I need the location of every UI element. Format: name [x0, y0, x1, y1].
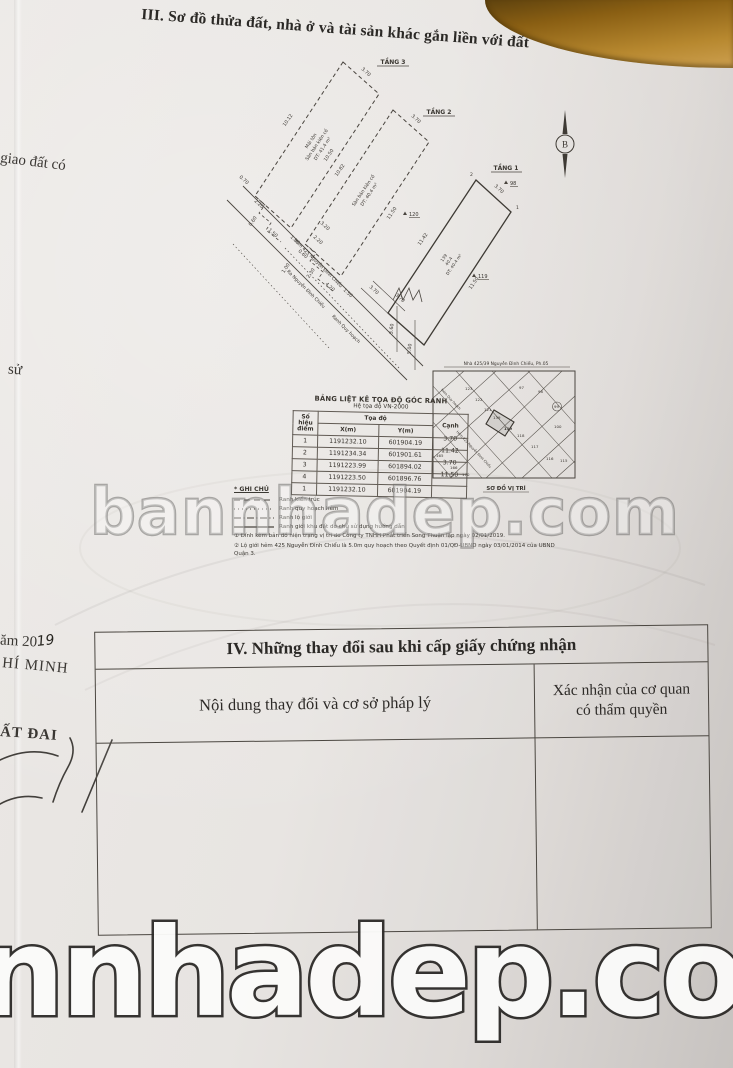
floor1-corner-2: 2	[470, 172, 473, 178]
floor2-dimensions: 3.70 10.82 11.50 0.60 2.20 2.30 3.20 4.2…	[281, 113, 422, 299]
street2-label: Ra Nguyễn Đình Chiểu	[285, 268, 327, 310]
svg-text:116: 116	[546, 456, 554, 461]
parcel-ref-98: 98	[504, 181, 518, 188]
floor2-interior-text: Sàn bán kiên cố DT: 40.4 m²	[350, 173, 379, 207]
svg-text:123: 123	[465, 386, 473, 391]
legend-line-dotted	[234, 506, 274, 512]
svg-text:170: 170	[462, 472, 470, 477]
svg-text:120: 120	[409, 212, 419, 218]
svg-text:2.30: 2.30	[306, 267, 317, 279]
svg-text:139: 139	[493, 415, 501, 420]
svg-text:100: 100	[554, 424, 562, 429]
legend-row: Ranh lộ giới	[234, 513, 566, 522]
floor3-dimensions: 3.70 10.12 10.50 0.70 2.20 0.60 1.50 1.3…	[238, 66, 372, 246]
target-parcel-outline	[486, 410, 514, 436]
svg-text:166: 166	[450, 465, 458, 470]
section4-table: IV. Những thay đổi sau khi cấp giấy chứn…	[94, 624, 712, 935]
floor1-dimensions: 3.70 11.42 11.50 3.70 3.70 3.60 5.00	[368, 183, 505, 354]
legend-row: Ranh kiến trúc	[234, 495, 566, 504]
note-item-2: ② Lộ giới hẻm 425 Nguyễn Đình Chiểu là 5…	[234, 543, 566, 559]
edge-fragment-2: sử	[7, 362, 22, 380]
svg-text:115: 115	[560, 458, 568, 463]
edge-fragment-3-handwritten: 19	[36, 632, 56, 650]
floor2-name: TẦNG 2	[427, 107, 452, 116]
edge-fragment-3: ăm 2019	[0, 633, 55, 653]
section4-body-right	[535, 736, 711, 929]
floor3-outline: TẦNG 3 Mái tôn Sàn bán kiên cố DT: 41.4 …	[238, 57, 409, 246]
svg-text:11.50: 11.50	[386, 206, 399, 221]
svg-text:3.70: 3.70	[368, 284, 380, 296]
svg-text:10.12: 10.12	[282, 113, 295, 128]
svg-text:10.82: 10.82	[334, 163, 347, 178]
legend-row: Ranh giới khu đất do chủ sử dụng hướng d…	[234, 522, 566, 531]
svg-text:98: 98	[538, 389, 543, 394]
svg-text:119: 119	[478, 274, 488, 280]
svg-text:117: 117	[531, 444, 539, 449]
floor1-interior-text: 139 40.4 DT: 40.4 m²	[439, 253, 462, 276]
svg-text:Hẻm Quy hoạch: Hẻm Quy hoạch	[440, 388, 461, 411]
certificate-page: III. Sơ đồ thửa đất, nhà ở và tài sản kh…	[0, 0, 733, 1068]
north-label: B	[562, 140, 568, 150]
svg-text:165: 165	[436, 453, 444, 458]
floor1-name: TẦNG 1	[494, 163, 519, 172]
svg-text:1.50: 1.50	[267, 227, 279, 239]
svg-text:0.70: 0.70	[238, 174, 250, 186]
svg-text:3.70: 3.70	[360, 66, 372, 78]
svg-text:122: 122	[475, 397, 483, 402]
floor-plan-diagram: TẦNG 3 Mái tôn Sàn bán kiên cố DT: 41.4 …	[225, 48, 625, 390]
section4-col1-header: Nội dung thay đổi và cơ sở pháp lý	[96, 664, 535, 743]
svg-text:1.50: 1.50	[342, 287, 354, 299]
section4-body-left	[97, 738, 537, 934]
svg-text:97: 97	[519, 385, 524, 390]
north-arrow: B	[556, 110, 574, 178]
notes-block: * GHI CHÚ Ranh kiến trúc Ranh quy hoạch …	[234, 486, 566, 559]
svg-text:99: 99	[554, 404, 559, 409]
legend-line-dashdot	[234, 515, 274, 521]
legend-row: Ranh quy hoạch hẻm	[234, 504, 566, 513]
location-map: Nhà 425/39 Nguyễn Đình Chiểu, Ph.05 123 …	[430, 358, 586, 496]
notes-heading: * GHI CHÚ	[234, 486, 566, 493]
location-map-title: Nhà 425/39 Nguyễn Đình Chiểu, Ph.05	[464, 360, 549, 367]
col-y: Y(m)	[378, 424, 433, 437]
note-item-1: ① Đính kèm bản đồ hiện trạng vị trí do C…	[234, 533, 566, 541]
floor1-corner-1: 1	[516, 205, 519, 211]
svg-text:2.20: 2.20	[312, 234, 324, 246]
svg-text:119: 119	[504, 426, 512, 431]
svg-text:Hẻm 425 Nguyễn Đình Chiểu: Hẻm 425 Nguyễn Đình Chiểu	[455, 429, 492, 469]
svg-text:11.42: 11.42	[417, 232, 430, 247]
parcel-ref-120: 120	[403, 212, 420, 219]
svg-text:3.70: 3.70	[493, 183, 505, 195]
svg-text:121: 121	[484, 407, 492, 412]
svg-text:98: 98	[510, 181, 516, 187]
legend-line-dashed	[234, 497, 274, 503]
floor1-outline: TẦNG 1 2 1 139 40.4 DT: 40.4 m² 3.70 11.…	[361, 163, 522, 370]
edge-fragment-3-printed: ăm 20	[0, 633, 38, 651]
svg-text:3.20: 3.20	[319, 220, 331, 232]
section4-col2-header: Xác nhận của cơ quan có thẩm quyền	[534, 662, 709, 738]
legend-line-solid	[234, 524, 274, 530]
svg-text:118: 118	[517, 433, 525, 438]
svg-text:3.70: 3.70	[410, 113, 422, 125]
floor3-name: TẦNG 3	[381, 57, 406, 66]
col-point: Số hiệu điểm	[293, 411, 318, 436]
